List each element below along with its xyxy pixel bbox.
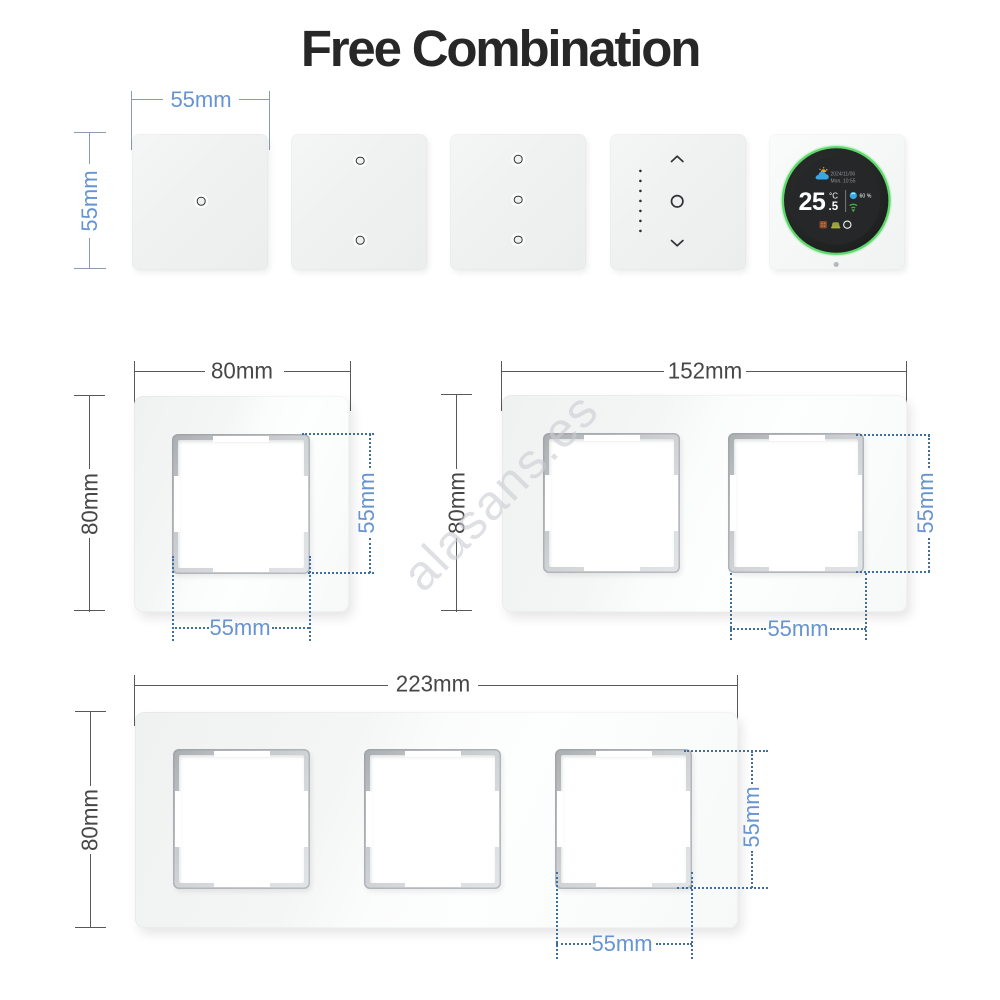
svg-text:2024/11/06: 2024/11/06 <box>830 172 855 178</box>
svg-text:Mon. 10:55: Mon. 10:55 <box>830 179 855 185</box>
svg-text:.5: .5 <box>828 201 838 213</box>
svg-text:60 %: 60 % <box>859 194 871 200</box>
svg-text:°C: °C <box>829 192 838 201</box>
svg-text:25: 25 <box>798 188 825 216</box>
